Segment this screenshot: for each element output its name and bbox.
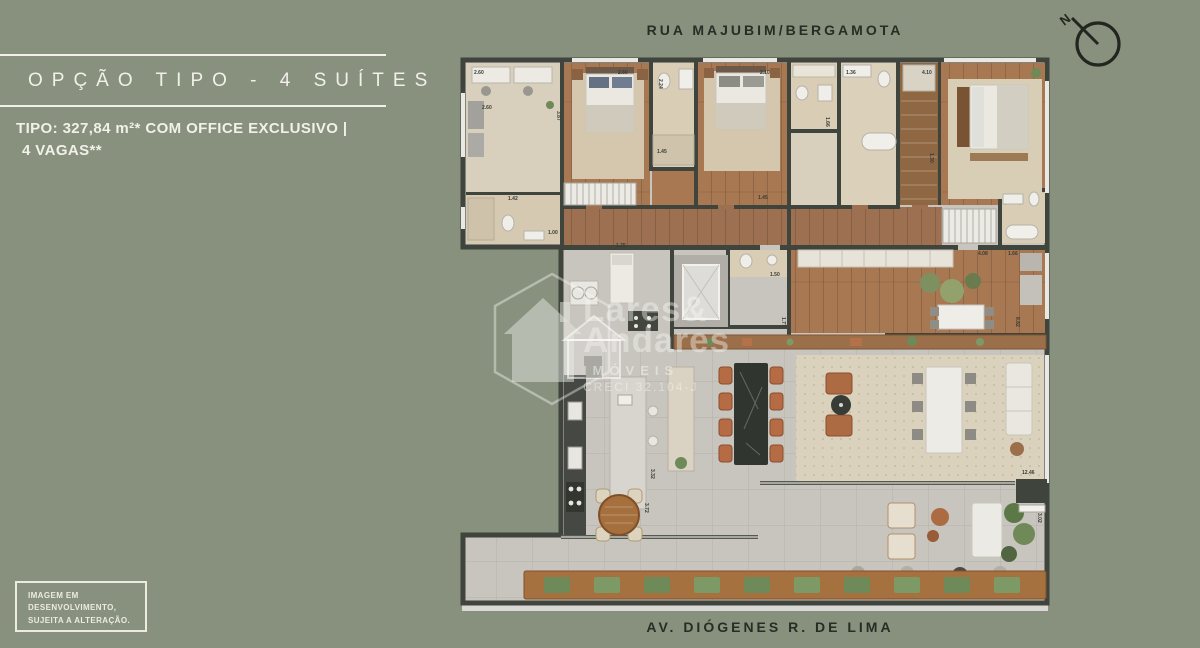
breakfast-table <box>596 489 642 541</box>
svg-text:1.45: 1.45 <box>758 195 768 201</box>
disclaimer-box: IMAGEM EM DESENVOLVIMENTO, SUJEITA A ALT… <box>15 581 147 632</box>
title-rule-bottom <box>0 105 386 107</box>
compass: N <box>1056 5 1156 81</box>
compass-north-label: N <box>1057 11 1074 29</box>
svg-text:1.50: 1.50 <box>770 272 780 278</box>
marketing-page: OPÇÃO TIPO - 4 SUÍTES TIPO: 327,84 m²* C… <box>0 0 1200 648</box>
svg-text:1.30: 1.30 <box>928 153 934 163</box>
disclaimer-line1: IMAGEM EM <box>28 590 145 602</box>
terrace-wall-block <box>1016 479 1047 503</box>
svg-text:2.60: 2.60 <box>618 70 628 76</box>
sideboard <box>674 335 1046 349</box>
svg-text:1.45: 1.45 <box>657 149 667 155</box>
svg-text:8.82: 8.82 <box>1014 317 1020 327</box>
street-label-top: RUA MAJUBIM/BERGAMOTA <box>575 22 975 38</box>
svg-text:12.46: 12.46 <box>1022 470 1035 476</box>
suite1-furniture <box>564 67 648 205</box>
svg-text:3.02: 3.02 <box>1036 513 1042 523</box>
unit-specs-line1: TIPO: 327,84 m²* COM OFFICE EXCLUSIVO | <box>16 118 348 140</box>
svg-text:1.00: 1.00 <box>548 230 558 236</box>
unit-specs-line2: 4 VAGAS** <box>22 140 348 162</box>
street-label-bottom: AV. DIÓGENES R. DE LIMA <box>570 619 970 635</box>
unit-specs: TIPO: 327,84 m²* COM OFFICE EXCLUSIVO | … <box>16 118 348 162</box>
disclaimer-line3: SUJEITA A ALTERAÇÃO. <box>28 615 145 627</box>
svg-text:2.24: 2.24 <box>657 79 663 89</box>
svg-text:1.66: 1.66 <box>1008 251 1018 257</box>
title-rule-top <box>0 54 386 56</box>
disclaimer-line2: DESENVOLVIMENTO, <box>28 602 145 614</box>
svg-text:2.60: 2.60 <box>474 70 484 76</box>
planter-strip <box>524 571 1046 599</box>
svg-text:1.36: 1.36 <box>846 70 856 76</box>
living-room <box>796 355 1044 481</box>
svg-text:1.75: 1.75 <box>616 243 626 249</box>
svg-text:1.77: 1.77 <box>780 317 786 327</box>
floor-plan: 2.602.602.242.101.364.102.603.871.421.45… <box>460 57 1060 613</box>
svg-text:3.87: 3.87 <box>555 111 561 121</box>
svg-text:4.08: 4.08 <box>978 251 988 257</box>
svg-text:1.66: 1.66 <box>824 117 830 127</box>
svg-text:2.10: 2.10 <box>760 70 770 76</box>
svg-text:1.42: 1.42 <box>508 196 518 202</box>
svg-text:3.72: 3.72 <box>643 503 649 513</box>
page-title: OPÇÃO TIPO - 4 SUÍTES <box>28 70 398 92</box>
svg-text:3.32: 3.32 <box>649 469 655 479</box>
suite2-furniture <box>704 66 780 171</box>
elevator <box>674 255 728 327</box>
svg-text:2.60: 2.60 <box>482 105 492 111</box>
svg-text:4.10: 4.10 <box>922 70 932 76</box>
